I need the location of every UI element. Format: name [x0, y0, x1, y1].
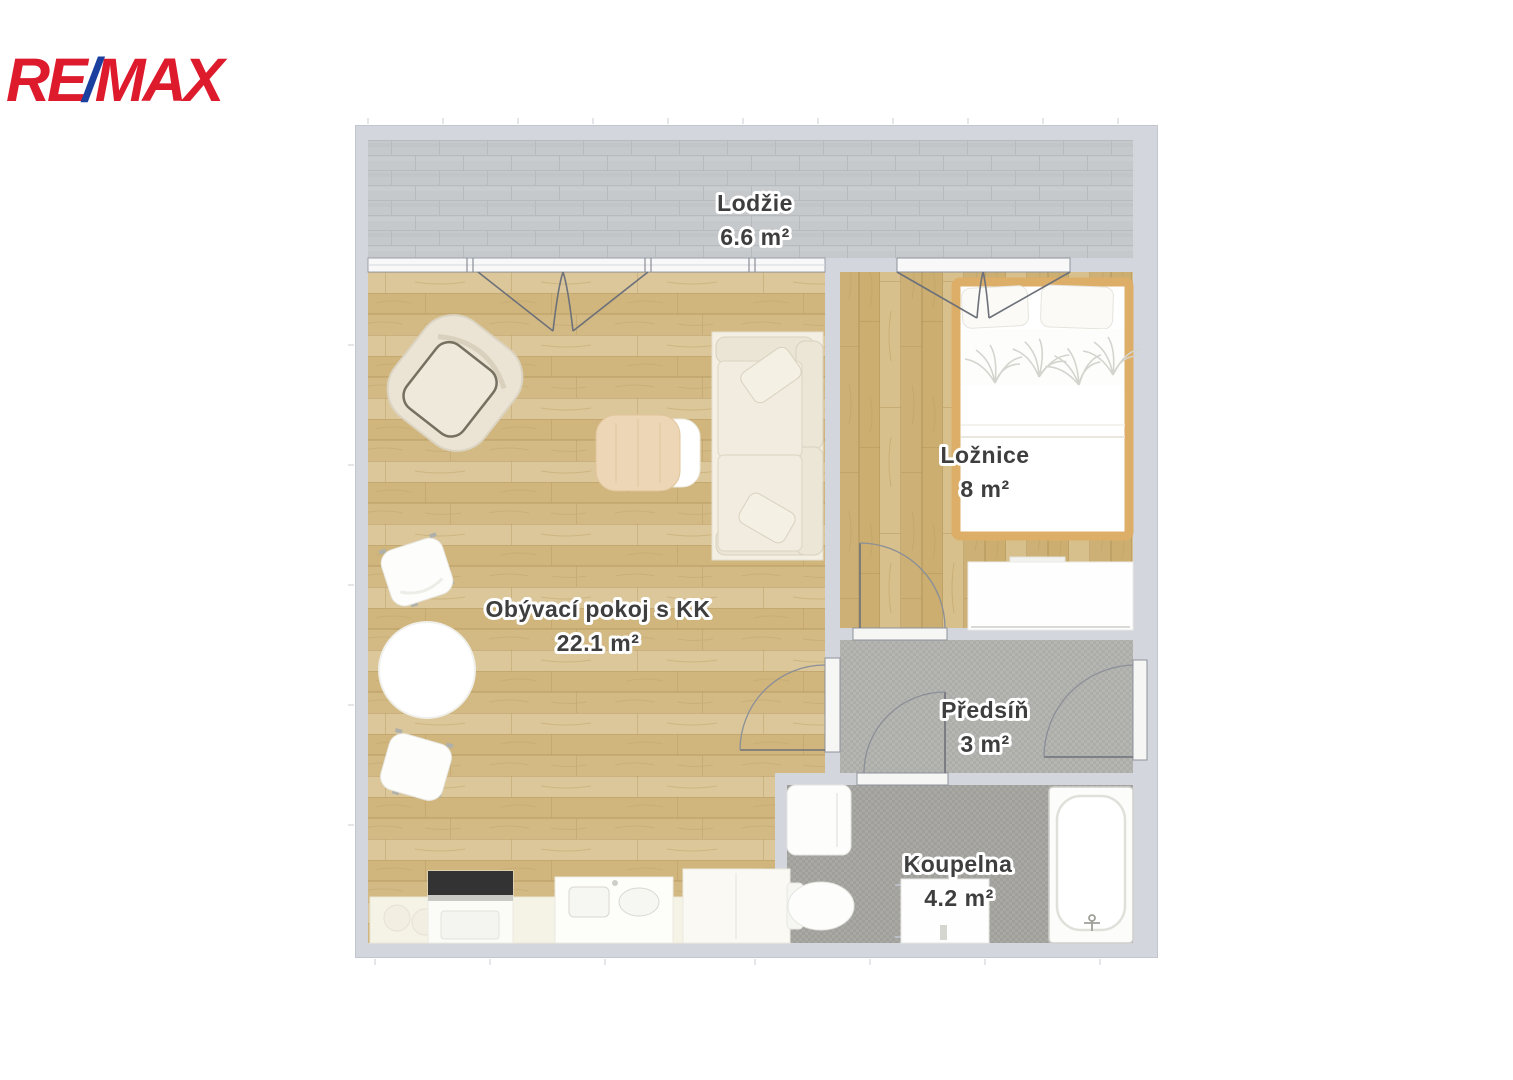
- floor-plan: Lodžie 6.6 m² Ložnice 8 m² Obývací pokoj…: [355, 125, 1158, 958]
- logo-re: RE: [6, 46, 85, 114]
- washing-machine: [787, 785, 851, 855]
- kitchen-sink: [555, 877, 673, 943]
- pillow: [961, 285, 1029, 328]
- label-hall-area: 3 m²: [960, 731, 1009, 757]
- kitchen-counter: [370, 869, 790, 943]
- label-bedroom-area: 8 m²: [960, 476, 1009, 502]
- burner: [384, 905, 410, 931]
- side-table: [596, 415, 700, 491]
- bathtub: [1049, 787, 1133, 943]
- sofa: [712, 332, 823, 560]
- label-bathroom-area: 4.2 m²: [924, 885, 993, 911]
- label-living-area: 22.1 m²: [557, 630, 640, 656]
- logo-max: MAX: [95, 46, 222, 114]
- remax-logo: RE/MAX: [6, 50, 221, 111]
- label-bedroom-name: Ložnice: [940, 442, 1029, 468]
- label-loggia-name: Lodžie: [717, 190, 793, 216]
- label-hall-name: Předsíň: [941, 697, 1029, 723]
- pillow: [1040, 285, 1113, 329]
- window-living-loggia: [368, 258, 825, 272]
- leaf-blanket: [961, 329, 1140, 390]
- label-living-name: Obývací pokoj s KK: [485, 596, 710, 622]
- dresser: [968, 557, 1133, 630]
- stove: [428, 871, 513, 943]
- page: RE/MAX: [0, 0, 1513, 1080]
- kitchen-cabinet: [683, 869, 790, 943]
- label-loggia-area: 6.6 m²: [720, 224, 789, 250]
- dining-table: [379, 622, 475, 718]
- toilet: [787, 882, 854, 930]
- label-bathroom-name: Koupelna: [904, 851, 1013, 877]
- faucet: [612, 880, 618, 886]
- faucet: [940, 925, 947, 940]
